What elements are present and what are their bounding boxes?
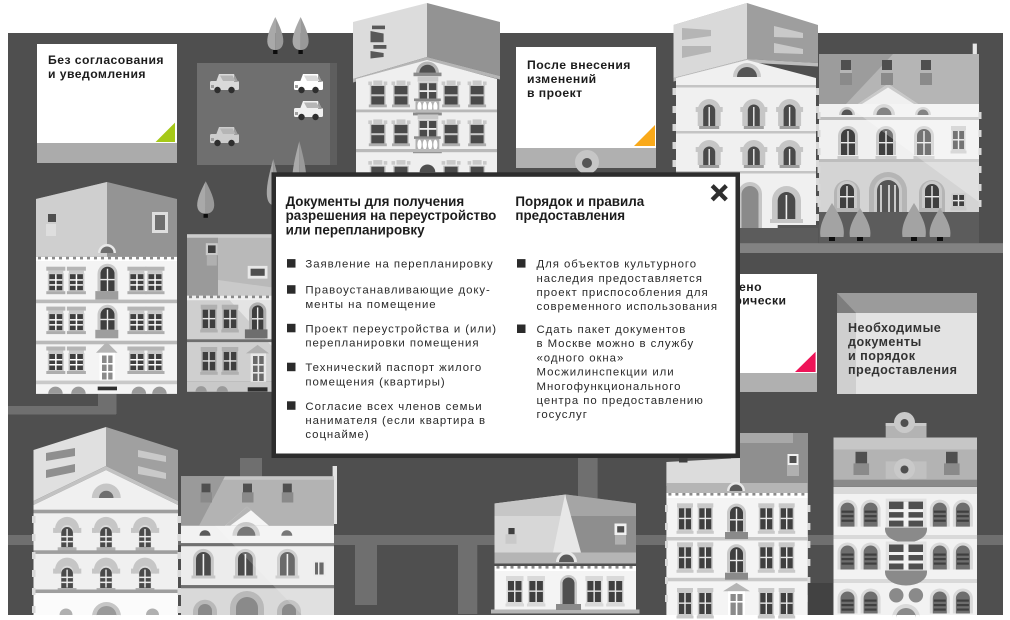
svg-text:Необходимые: Необходимые [848,321,941,335]
svg-text:современного использования: современного использования [537,301,718,313]
svg-text:перепланировки помещения: перепланировки помещения [305,338,479,350]
svg-text:разрешения на переустройство: разрешения на переустройство [286,208,497,223]
svg-text:госуслуг: госуслуг [537,409,588,421]
svg-text:Многофункционального: Многофункционального [537,381,682,393]
svg-text:предоставления: предоставления [848,363,957,377]
svg-text:Порядок и правила: Порядок и правила [515,194,644,209]
svg-text:нанимателя (если квартира в: нанимателя (если квартира в [305,415,486,427]
svg-text:«одного окна»: «одного окна» [537,352,625,364]
svg-text:Без согласования: Без согласования [48,53,164,67]
svg-text:и уведомления: и уведомления [48,67,146,81]
svg-text:После внесения: После внесения [527,58,631,72]
svg-text:соцнайме): соцнайме) [305,429,369,441]
svg-text:в Москве можно в службу: в Москве можно в службу [537,338,695,350]
svg-text:Согласие всех членов семьи: Согласие всех членов семьи [305,401,482,413]
svg-text:Для объектов культурного: Для объектов культурного [537,259,698,271]
svg-text:помещения (квартиры): помещения (квартиры) [305,376,445,388]
svg-text:Заявление на перепланировку: Заявление на перепланировку [305,259,493,271]
svg-text:Технический паспорт жилого: Технический паспорт жилого [305,362,482,374]
svg-text:Проект переустройства и (или): Проект переустройства и (или) [305,323,497,335]
svg-text:изменений: изменений [527,72,597,86]
svg-text:проект приспособления для: проект приспособления для [537,287,709,299]
svg-text:центра по предоставлению: центра по предоставлению [537,395,704,407]
svg-text:наследия предоставляется: наследия предоставляется [537,273,703,285]
svg-text:документы: документы [848,335,922,349]
svg-text:Правоустанавливающие доку-: Правоустанавливающие доку- [305,285,490,297]
svg-text:в проект: в проект [527,86,583,100]
svg-text:Мосжилинспекции или: Мосжилинспекции или [537,367,675,379]
svg-text:и порядок: и порядок [848,349,916,363]
svg-text:менты на помещение: менты на помещение [305,299,436,311]
svg-text:Документы для получения: Документы для получения [286,194,465,209]
svg-text:Сдать пакет документов: Сдать пакет документов [537,324,687,336]
svg-text:предоставления: предоставления [515,208,625,223]
svg-text:или перепланировку: или перепланировку [286,222,426,237]
